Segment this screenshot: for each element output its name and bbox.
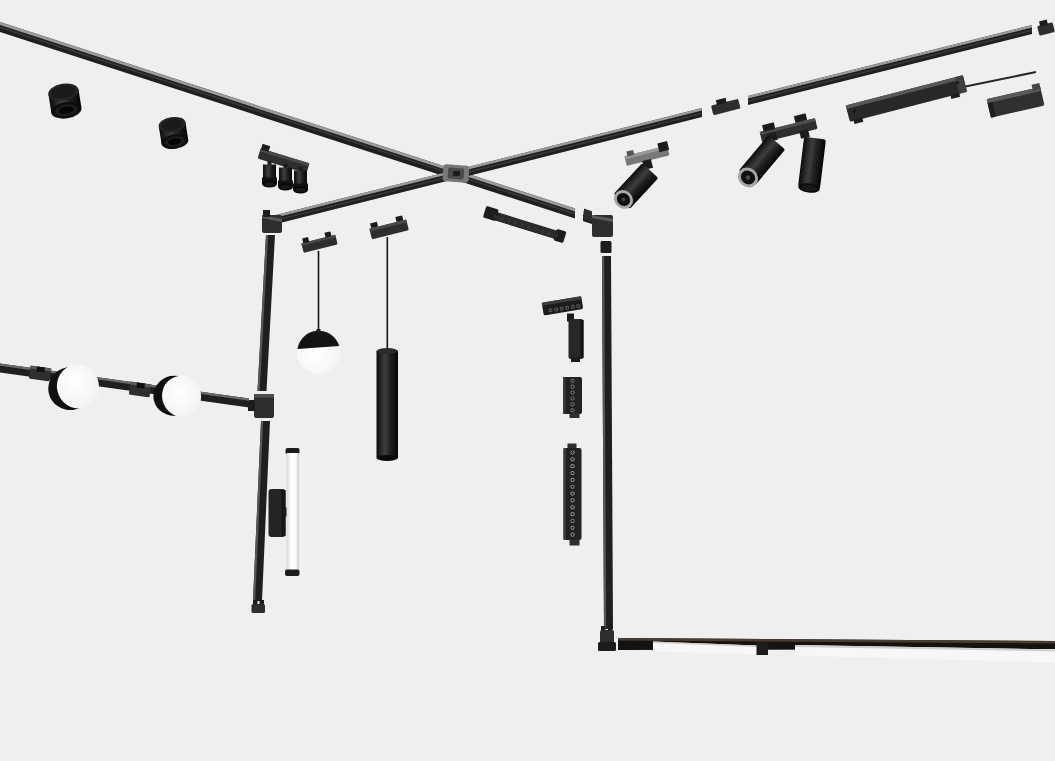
right-wall-gap-piece (601, 241, 612, 253)
double-track-spotlight (734, 111, 826, 194)
lens-dot (571, 472, 573, 474)
lens-dot (555, 235, 557, 237)
lens-dot (571, 520, 573, 522)
long-grille-top-tab (568, 444, 577, 449)
track-b-seg3-channel (748, 29, 1032, 102)
lens-dot (528, 226, 530, 228)
lens-dot (494, 216, 496, 218)
short-grille-spot (563, 377, 582, 418)
driver-antenna (963, 72, 1036, 87)
right-wall-track (592, 215, 616, 651)
folded-wall-washer-head (542, 296, 584, 315)
ceiling-track-front (0, 22, 592, 224)
surface-cylinder-downlight-small (158, 115, 190, 151)
cross-connector (442, 164, 469, 183)
tube-pendant (368, 215, 409, 461)
floor-track-linear-light (618, 638, 1055, 663)
triple-spot-head-3 (293, 167, 308, 193)
round-disk-light-1 (44, 360, 103, 414)
lens-dot (508, 220, 510, 222)
lens-dot (571, 380, 573, 382)
product-render-canvas (0, 0, 1055, 761)
track-b-seg2-top (468, 108, 702, 170)
lens-dot (571, 451, 573, 453)
folded-wall-washer (542, 296, 584, 362)
triple-spot-head-1 (262, 161, 277, 187)
lens-dot (571, 527, 573, 529)
right-wall-corner-connector (592, 215, 613, 237)
lens-dot (571, 458, 573, 460)
lens-dot (571, 391, 573, 393)
lens-dot (571, 465, 573, 467)
lens-dot (571, 506, 573, 508)
lens-dot (571, 492, 573, 494)
lens-dot (521, 224, 523, 226)
lens-dot (571, 403, 573, 405)
left-wall-corner-connector (262, 210, 282, 233)
ceiling-linear-grille-light (483, 206, 567, 245)
left-wall-track-end-cap (252, 600, 266, 613)
track-b-seg3-top (748, 25, 1032, 99)
long-grille-spot (564, 444, 582, 546)
ceiling-track-right (268, 18, 1055, 226)
triple-spot-head-2 (278, 164, 293, 190)
track-b-end-connector (1036, 18, 1055, 35)
tube-pendant-bottom (377, 455, 398, 461)
wall-h-track-clamp-1 (29, 366, 52, 382)
folded-wall-washer-foot (571, 358, 580, 363)
tube-pendant-top (377, 348, 398, 354)
wall-tube-cap-bottom (285, 570, 300, 577)
left-wall-t-connector (248, 394, 274, 418)
lens-dot (501, 218, 503, 220)
lens-dot (542, 230, 544, 232)
lens-dot (571, 397, 573, 399)
surface-cylinder-downlight-large (47, 81, 83, 120)
left-wall-track (248, 210, 282, 613)
lens-dot (571, 479, 573, 481)
single-track-spotlight (610, 141, 670, 213)
triple-spot-bar (258, 144, 311, 194)
sphere-pendant-nub (317, 329, 321, 333)
lens-dot (549, 232, 551, 234)
lens-dot (571, 499, 573, 501)
lens-dot (515, 222, 517, 224)
wall-horizontal-track (0, 364, 249, 408)
mounting-box (986, 83, 1045, 118)
wall-tube-light (285, 448, 300, 576)
short-grille-foot (570, 413, 580, 418)
sphere-pendant (297, 230, 340, 374)
double-spot-body-right (798, 137, 826, 189)
right-wall-bottom-connector (598, 626, 616, 651)
tube-pendant-body (377, 351, 399, 458)
lens-dot (571, 513, 573, 515)
wall-tube-body (287, 453, 300, 571)
lens-dot (571, 386, 573, 388)
long-grille-bottom-tab (570, 540, 580, 546)
lens-dot (535, 228, 537, 230)
product-render-stage (0, 0, 1055, 761)
round-disk-light-2 (150, 371, 205, 422)
lens-dot (571, 534, 573, 536)
floor-diffuser-connector (757, 642, 769, 655)
track-a-gap (575, 204, 583, 224)
track-b-mini-connector (710, 95, 741, 115)
lens-dot (571, 409, 573, 411)
wall-h-track-clamp-2 (129, 382, 152, 398)
sphere-pendant-cap (297, 331, 339, 349)
lens-dot (571, 486, 573, 488)
